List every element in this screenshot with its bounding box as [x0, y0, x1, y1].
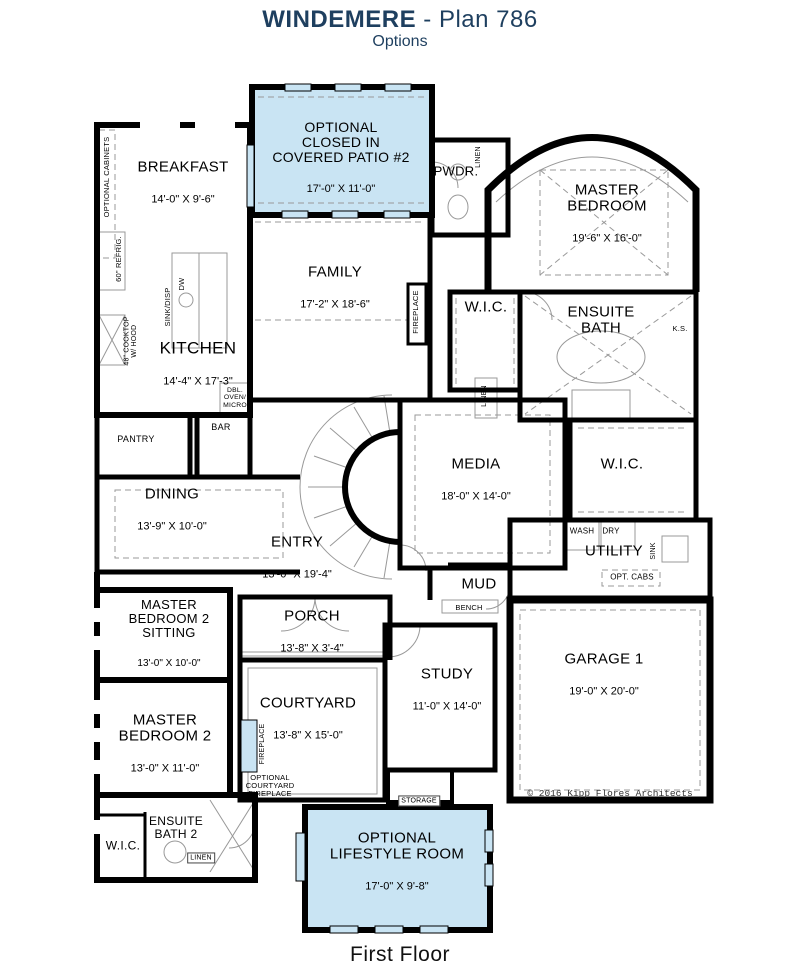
room-label-ensuite-bath: ENSUITE BATH [567, 288, 634, 355]
room-dims: 17'-0" X 9'-8" [330, 881, 464, 893]
plan-name: WINDEMERE [262, 6, 416, 33]
floor-level-label: First Floor [0, 943, 800, 967]
label-bench: BENCH [455, 604, 482, 612]
room-label-pantry: PANTRY [117, 418, 154, 462]
room-name: ENTRY [262, 535, 332, 551]
room-dims: 13'-9" X 10'-0" [137, 521, 207, 533]
room-label-media: MEDIA 18'-0" X 14'-0" [441, 440, 511, 521]
room-name: PANTRY [117, 435, 154, 445]
room-dims: 19'-0" X 20'-0" [564, 686, 643, 698]
label-family-fireplace: FIREPLACE [412, 290, 420, 333]
room-name: W.I.C. [601, 457, 644, 473]
room-label-wic-bottom: W.I.C. [106, 822, 140, 869]
room-name: STUDY [413, 667, 482, 683]
room-label-dining: DINING 13'-9" X 10'-0" [137, 470, 207, 551]
room-name: MUD [461, 577, 496, 593]
room-name: DINING [137, 487, 207, 503]
label-sink-disp: SINK/DISP [164, 288, 172, 327]
room-name: ENSUITE BATH [567, 305, 634, 337]
room-name: UTILITY [585, 544, 643, 560]
room-dims: 11'-0" X 14'-0" [413, 701, 482, 713]
copyright-notice: © 2016 Kipp Flores Architects [527, 789, 692, 799]
room-label-breakfast: BREAKFAST 14'-0" X 9'-6" [137, 143, 228, 224]
room-dims: 13'-0" X 11'-0" [119, 763, 212, 775]
room-name: OPTIONAL LIFESTYLE ROOM [330, 831, 464, 863]
label-dryer: DRY [602, 528, 619, 537]
room-name: KITCHEN [160, 340, 237, 358]
room-name: COURTYARD [260, 696, 356, 712]
label-ensuite-linen: LINEN [481, 385, 489, 407]
ensuite-vanity [572, 390, 630, 418]
room-label-entry: ENTRY 13'-0" X 19'-4" [262, 518, 332, 599]
label-bath2-linen: LINEN [187, 852, 215, 863]
room-name: W.I.C. [106, 840, 140, 853]
label-refrigerator: 60" REFRIG. [115, 236, 123, 282]
kitchen-sink [179, 293, 193, 307]
room-dims: 14'-0" X 9'-6" [137, 194, 228, 206]
room-name: GARAGE 1 [564, 652, 643, 668]
label-optional-courtyard-fireplace: OPTIONAL COURTYARD FIREPLACE [246, 774, 295, 798]
optional-courtyard-fireplace-box [241, 720, 257, 772]
room-dims: 18'-0" X 14'-0" [441, 491, 511, 503]
room-name: OPTIONAL CLOSED IN COVERED PATIO #2 [272, 120, 409, 165]
plan-number: - Plan 786 [416, 6, 538, 33]
room-label-courtyard: COURTYARD 13'-8" X 15'-0" [260, 679, 356, 760]
room-label-study: STUDY 11'-0" X 14'-0" [413, 650, 482, 731]
door-arc-ensuite [524, 292, 552, 320]
room-label-family: FAMILY 17'-2" X 18'-6" [300, 248, 370, 329]
room-name: MEDIA [441, 457, 511, 473]
room-dims: 17'-0" X 11'-0" [272, 184, 409, 196]
room-label-garage1: GARAGE 1 19'-0" X 20'-0" [564, 635, 643, 716]
room-dims: 13'-8" X 3'-4" [280, 643, 343, 655]
plan-subtitle: Options [0, 33, 800, 51]
room-label-ensuite-bath2: ENSUITE BATH 2 [149, 798, 203, 858]
room-label-master-bedroom: MASTER BEDROOM 19'-6" X 16'-0" [567, 165, 647, 262]
room-dims: 13'-0" X 10'-0" [129, 659, 210, 670]
label-washer: WASH [570, 528, 595, 537]
room-dims: 19'-6" X 16'-0" [567, 233, 647, 245]
room-label-mb2: MASTER BEDROOM 2 13'-0" X 11'-0" [119, 695, 212, 792]
room-name: ENSUITE BATH 2 [149, 815, 203, 841]
label-knee-space: K.S. [673, 325, 688, 333]
room-label-lifestyle: OPTIONAL LIFESTYLE ROOM 17'-0" X 9'-8" [330, 813, 464, 910]
room-name: MASTER BEDROOM 2 [119, 713, 212, 745]
room-dims: 17'-2" X 18'-6" [300, 299, 370, 311]
label-utility-sink: SINK [650, 542, 658, 559]
label-double-oven-micro: DBL. OVEN/ MICRO [223, 387, 247, 409]
room-name: MASTER BEDROOM [567, 183, 647, 215]
room-name: PORCH [280, 609, 343, 625]
room-name: PWDR. [434, 165, 479, 179]
room-label-storage: STORAGE [398, 795, 440, 806]
room-name: BAR [211, 423, 230, 433]
room-label-porch: PORCH 13'-8" X 3'-4" [280, 592, 343, 673]
room-name: MASTER BEDROOM 2 SITTING [129, 598, 210, 640]
pwdr-toilet [448, 195, 468, 219]
floor-plan-page: WINDEMERE - Plan 786 Options OPTIONAL CL… [0, 0, 800, 974]
label-cooktop: 48" COOKTOP W/ HOOD [123, 316, 138, 365]
label-pwdr-linen: LINEN [475, 146, 483, 168]
label-dishwasher: DW [178, 278, 186, 291]
room-dims: 13'-0" X 19'-4" [262, 569, 332, 581]
label-courtyard-fireplace: FIREPLACE [259, 724, 267, 765]
room-dims: 13'-8" X 15'-0" [260, 730, 356, 742]
room-label-wic2: W.I.C. [601, 440, 644, 491]
room-name: BREAKFAST [137, 160, 228, 176]
label-optional-cabinets: OPTIONAL CABINETS [103, 137, 111, 218]
utility-sink [662, 536, 688, 562]
room-label-bar: BAR [211, 406, 230, 450]
room-name: W.I.C. [465, 300, 508, 316]
room-label-pwdr: PWDR. [434, 148, 479, 197]
label-opt-cabs: OPT. CABS [610, 574, 654, 583]
room-label-wic-master: W.I.C. [465, 283, 508, 334]
room-name: FAMILY [300, 265, 370, 281]
room-label-patio2: OPTIONAL CLOSED IN COVERED PATIO #2 17'-… [272, 103, 409, 213]
room-label-mb2-sitting: MASTER BEDROOM 2 SITTING 13'-0" X 10'-0" [129, 581, 210, 687]
plan-title: WINDEMERE - Plan 786 [0, 6, 800, 34]
bath2-shower [210, 800, 255, 872]
